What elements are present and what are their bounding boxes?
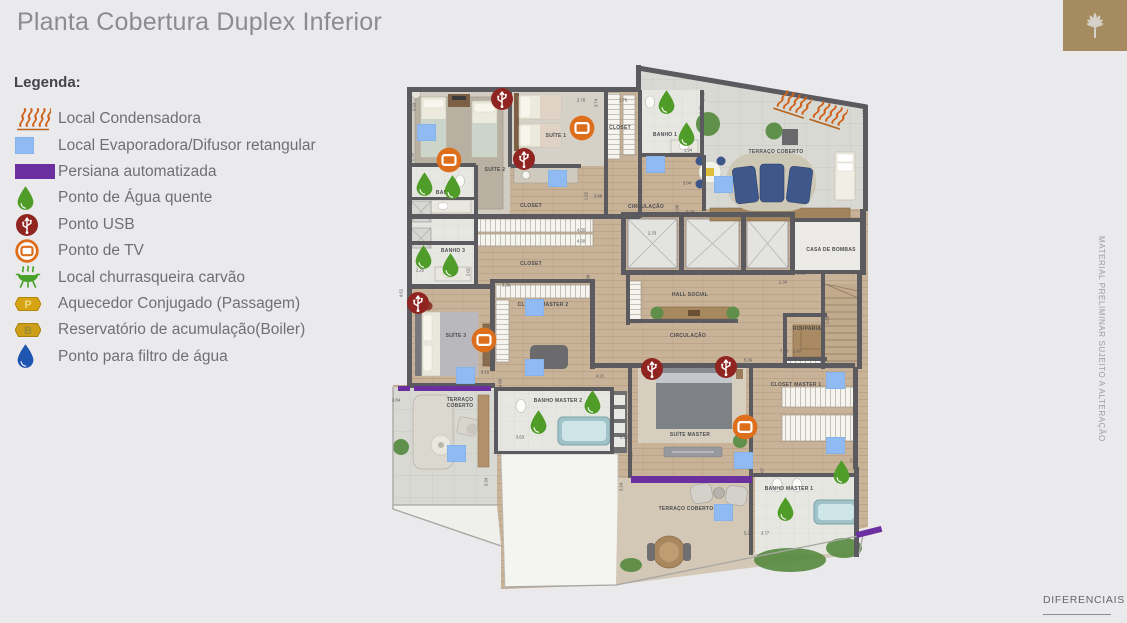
planta-page: Planta Cobertura Duplex Inferior Legenda… (0, 0, 1127, 623)
dimension-label: 1.76 (619, 98, 627, 103)
room-label: ROUPARIA (793, 326, 821, 332)
dimension-label: 1.06 (675, 205, 680, 213)
legend-item-label: Local churrasqueira carvão (58, 269, 245, 287)
agua-quente-icon (676, 121, 697, 153)
dimension-label: 5.46 (701, 93, 706, 101)
tv-icon (732, 414, 758, 445)
dimension-label: 5.36 (744, 358, 752, 363)
dimension-label: 2.33 (648, 231, 656, 236)
usb-icon (14, 213, 58, 237)
room-label: CLOSET (609, 125, 631, 131)
legend-item-label: Reservatório de acumulação(Boiler) (58, 321, 305, 339)
condensadora-icon (770, 87, 813, 125)
legend-list: Local CondensadoraLocal Evaporadora/Difu… (14, 106, 394, 370)
legend-item-label: Local Evaporadora/Difusor retangular (58, 137, 316, 155)
agua-quente-icon (831, 459, 852, 491)
dimension-label: 2.55 (797, 271, 805, 276)
dimension-label: 3.16 (481, 370, 489, 375)
dimension-label: 3.34 (484, 478, 489, 486)
svg-text:B: B (24, 325, 32, 337)
cond-icon (14, 108, 58, 131)
condensadora-icon (806, 98, 849, 136)
diferenciais-link[interactable]: DIFERENCIAIS (1043, 590, 1111, 615)
agua-quente-icon (656, 89, 677, 121)
legend-item-label: Ponto de TV (58, 242, 144, 260)
room-label: BANHO 1 (653, 132, 677, 138)
legend: Legenda: Local CondensadoraLocal Evapora… (14, 74, 394, 370)
dimension-label: 3.39 (502, 283, 510, 288)
agua-quente-icon (528, 409, 549, 441)
evaporadora-icon (417, 124, 436, 146)
floor-plan-overlay: SUÍTE 2SUÍTE 1CLOSETBANHO 1BANHO 2BANHO … (388, 57, 884, 597)
dimension-label: 5.27 (744, 531, 752, 536)
dimension-label: 4.30 (577, 239, 585, 244)
brand-logo (1063, 0, 1127, 51)
room-label: SUÍTE MASTER (670, 432, 710, 438)
room-label: CLOSET MASTER 1 (771, 382, 822, 388)
persiana-icon (414, 386, 491, 391)
agua-quente-icon (775, 496, 796, 528)
dimension-label: 9.08 (686, 210, 694, 215)
evaporadora-icon (826, 437, 845, 459)
room-label: SUÍTE 1 (546, 133, 567, 139)
room-label: SUÍTE 3 (446, 333, 467, 339)
usb-icon (640, 357, 664, 386)
legend-item-usb: Ponto USB (14, 212, 394, 238)
dimension-label: 4.35 (577, 228, 585, 233)
usb-icon (512, 147, 536, 176)
legend-item-tv: Ponto de TV (14, 238, 394, 264)
legend-item-label: Ponto de Água quente (58, 189, 212, 207)
dimension-label: 7.98 (586, 275, 591, 283)
room-label: CIRCULAÇÃO (670, 333, 706, 339)
agua-quente-icon (413, 244, 434, 276)
room-label: SUÍTE 2 (485, 167, 506, 173)
tv-icon (471, 327, 497, 358)
dimension-label: 2.78 (577, 98, 585, 103)
dimension-label: 3.24 (619, 483, 624, 491)
grill-icon (14, 265, 58, 291)
dimension-label: 2.02 (466, 268, 471, 276)
dimension-label: 3.77 (761, 531, 769, 536)
evaporadora-icon (714, 176, 733, 198)
room-label: TERRAÇO COBERTO (659, 506, 714, 512)
legend-item-cond: Local Condensadora (14, 106, 394, 132)
legend-item-persiana: Persiana automatizada (14, 159, 394, 185)
room-label: TERRAÇO COBERTO (749, 149, 804, 155)
evaporadora-icon (525, 299, 544, 321)
dimension-label: 1.43 (793, 349, 801, 354)
persiana-icon (631, 476, 752, 483)
evaporadora-icon (525, 359, 544, 381)
persiana-icon (398, 386, 410, 391)
legend-item-label: Ponto para filtro de água (58, 348, 228, 366)
persiana-icon (14, 164, 58, 179)
dimension-label: 3.74 (594, 99, 599, 107)
evaporadora-icon (447, 445, 466, 467)
watermark-text: MATERIAL PRELIMINAR SUJEITO A ALTERAÇÃO (1097, 236, 1106, 442)
page-title: Planta Cobertura Duplex Inferior (17, 8, 382, 37)
legend-item-hexb: BReservatório de acumulação(Boiler) (14, 317, 394, 343)
room-label: CASA DE BOMBAS (806, 247, 855, 253)
dimension-label: 5.15 (620, 435, 628, 440)
legend-item-grill: Local churrasqueira carvão (14, 264, 394, 290)
agua-quente-icon (442, 174, 463, 206)
usb-icon (406, 291, 430, 320)
dimension-label: 4.05 (498, 379, 503, 387)
room-label: CLOSET (520, 203, 542, 209)
dimension-label: 3.84 (392, 398, 400, 403)
dimension-label: 4.61 (399, 289, 404, 297)
room-label: BANHO MASTER 2 (534, 398, 583, 404)
evaporadora-icon (646, 156, 665, 178)
dimension-label: 4.16 (862, 110, 867, 118)
evaporadora-icon (826, 372, 845, 394)
dimension-label: 2.34 (779, 280, 787, 285)
agua-quente-icon (582, 389, 603, 421)
dimension-label: 1.88 (825, 316, 830, 324)
legend-item-dropb: Ponto para filtro de água (14, 344, 394, 370)
palm-leaf-icon (1080, 11, 1110, 41)
room-label: CIRCULAÇÃO (628, 204, 664, 210)
evap-icon (14, 137, 58, 154)
dimension-label: 2.59 (410, 153, 415, 161)
usb-icon (490, 87, 514, 116)
legend-item-label: Local Condensadora (58, 110, 201, 128)
room-label: TERRAÇO COBERTO (442, 397, 478, 409)
evaporadora-icon (734, 452, 753, 474)
legend-item-label: Persiana automatizada (58, 163, 217, 181)
evaporadora-icon (714, 504, 733, 526)
evaporadora-icon (548, 170, 567, 192)
legend-item-hexp: PAquecedor Conjugado (Passagem) (14, 291, 394, 317)
agua-quente-icon (414, 171, 435, 203)
agua-quente-icon (440, 252, 461, 284)
dimension-label: 3.93 (412, 103, 417, 111)
dimension-label: 4.21 (596, 374, 604, 379)
dimension-label: 3.04 (683, 181, 691, 186)
dropg-icon (14, 185, 58, 212)
dimension-label: 2.53 (699, 106, 704, 114)
hexp-icon: P (14, 291, 58, 317)
legend-item-dropg: Ponto de Água quente (14, 185, 394, 211)
dimension-label: 4.98 (629, 452, 634, 460)
legend-item-label: Ponto USB (58, 216, 135, 234)
svg-text:P: P (24, 299, 31, 311)
tv-icon (14, 239, 58, 263)
usb-icon (714, 355, 738, 384)
dimension-label: 3.99 (594, 194, 602, 199)
footer-rule (1043, 614, 1111, 615)
dimension-label: 3.63 (516, 435, 524, 440)
dimension-label: 1.92 (584, 192, 589, 200)
room-label: HALL SOCIAL (672, 292, 708, 298)
room-label: BANHO MASTER 1 (765, 486, 814, 492)
tv-icon (569, 115, 595, 146)
persiana-icon (856, 526, 883, 538)
floor-plan: SUÍTE 2SUÍTE 1CLOSETBANHO 1BANHO 2BANHO … (388, 57, 884, 597)
diferenciais-label: DIFERENCIAIS (1043, 594, 1125, 606)
legend-title: Legenda: (14, 74, 394, 91)
dropb-icon (14, 343, 58, 370)
legend-item-evap: Local Evaporadora/Difusor retangular (14, 132, 394, 158)
legend-item-label: Aquecedor Conjugado (Passagem) (58, 295, 300, 313)
dimension-label: 2.07 (760, 468, 765, 476)
room-label: CLOSET (520, 261, 542, 267)
dimension-label: 7.40 (780, 349, 788, 354)
hexb-icon: B (14, 317, 58, 343)
